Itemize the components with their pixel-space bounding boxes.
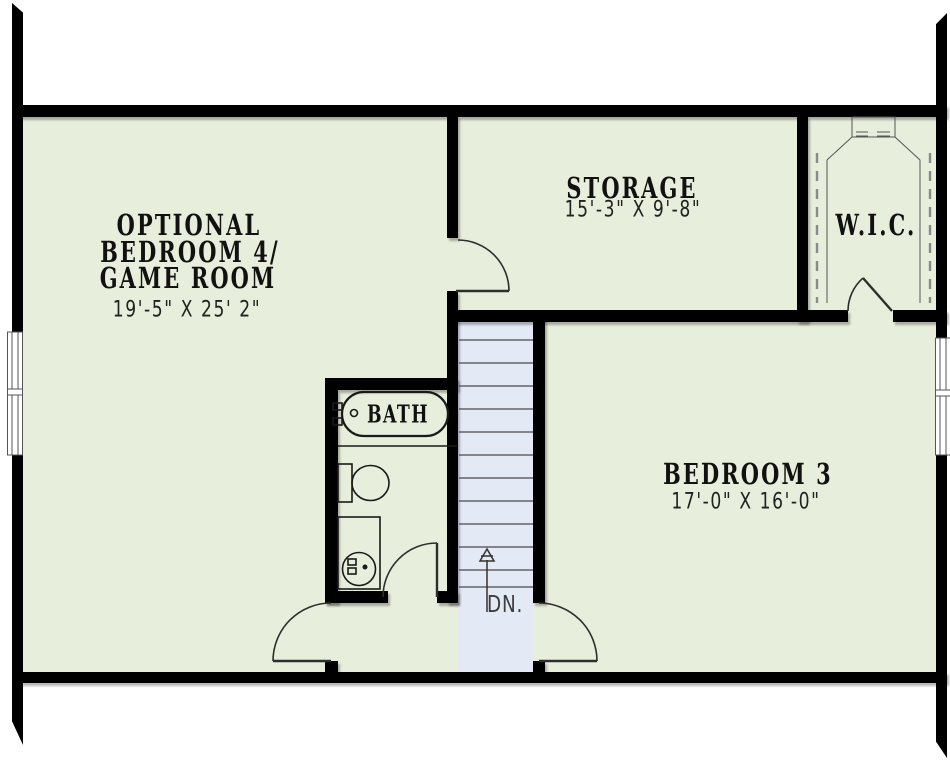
bath-label: BATH — [367, 400, 429, 429]
wic-label: W.I.C. — [836, 208, 917, 242]
gameroom-dimensions: 19'-5" X 25' 2" — [113, 298, 261, 323]
window-right — [936, 338, 950, 455]
window-left — [8, 332, 23, 455]
gameroom-label-line3: GAME ROOM — [100, 261, 277, 295]
plan-linework — [0, 0, 950, 764]
stairs-down-label: DN. — [487, 592, 523, 618]
door-storage — [456, 240, 509, 291]
door-wic — [848, 278, 892, 311]
door-bedroom3-hall — [539, 603, 597, 661]
bedroom3-dimensions: 17'-0" X 16'-0" — [671, 490, 820, 515]
floor-plan: OPTIONAL BEDROOM 4/ GAME ROOM 19'-5" X 2… — [0, 0, 950, 764]
storage-dimensions: 15'-3" X 9'-8" — [565, 198, 702, 223]
door-gameroom-hall — [273, 603, 331, 661]
door-bath — [383, 543, 437, 597]
sink-vanity-fixture — [338, 517, 380, 589]
bedroom3-label: BEDROOM 3 — [663, 457, 833, 491]
toilet-fixture — [338, 464, 389, 502]
stair-treads — [459, 340, 533, 587]
